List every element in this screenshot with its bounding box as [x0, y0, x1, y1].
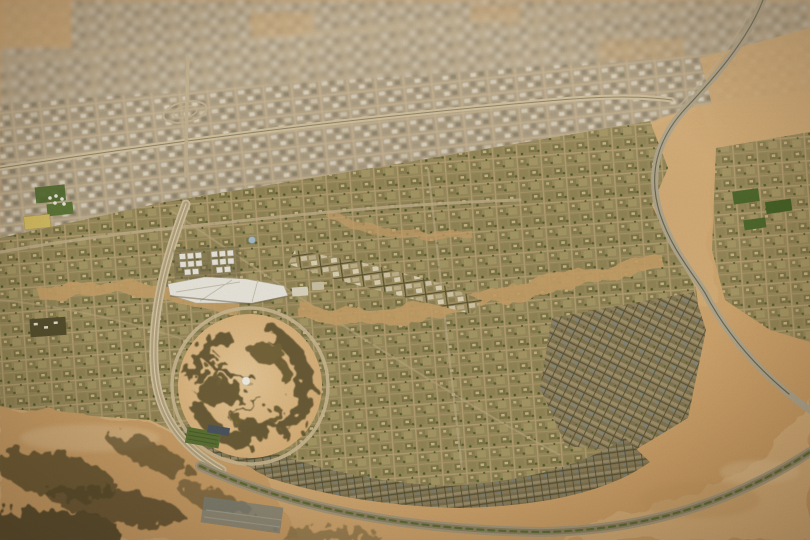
- aerial-photo-canvas: [0, 0, 810, 540]
- vignette: [0, 0, 810, 540]
- aerial-photo: Oblique tilt-shift aerial render of a sp…: [0, 0, 810, 540]
